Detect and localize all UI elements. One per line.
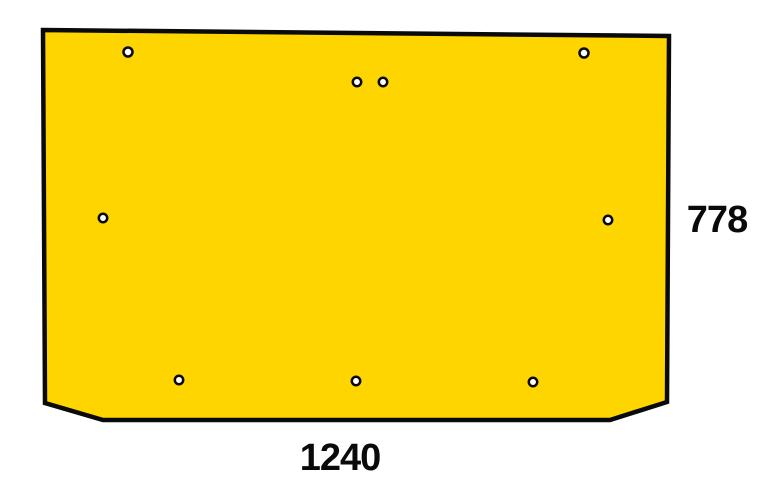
- mounting-hole: [124, 48, 133, 57]
- mounting-hole: [379, 78, 387, 86]
- panel-outline: [43, 30, 669, 420]
- mounting-hole: [529, 378, 537, 386]
- height-dimension-label: 778: [687, 201, 747, 239]
- mounting-hole: [353, 78, 361, 86]
- panel-diagram-svg: [0, 0, 768, 485]
- mounting-hole: [604, 216, 612, 224]
- mounting-hole: [352, 377, 360, 385]
- width-dimension-label: 1240: [300, 439, 381, 477]
- mounting-hole: [175, 376, 183, 384]
- mounting-hole: [99, 214, 107, 222]
- diagram-canvas: 778 1240: [0, 0, 768, 485]
- mounting-hole: [580, 49, 589, 58]
